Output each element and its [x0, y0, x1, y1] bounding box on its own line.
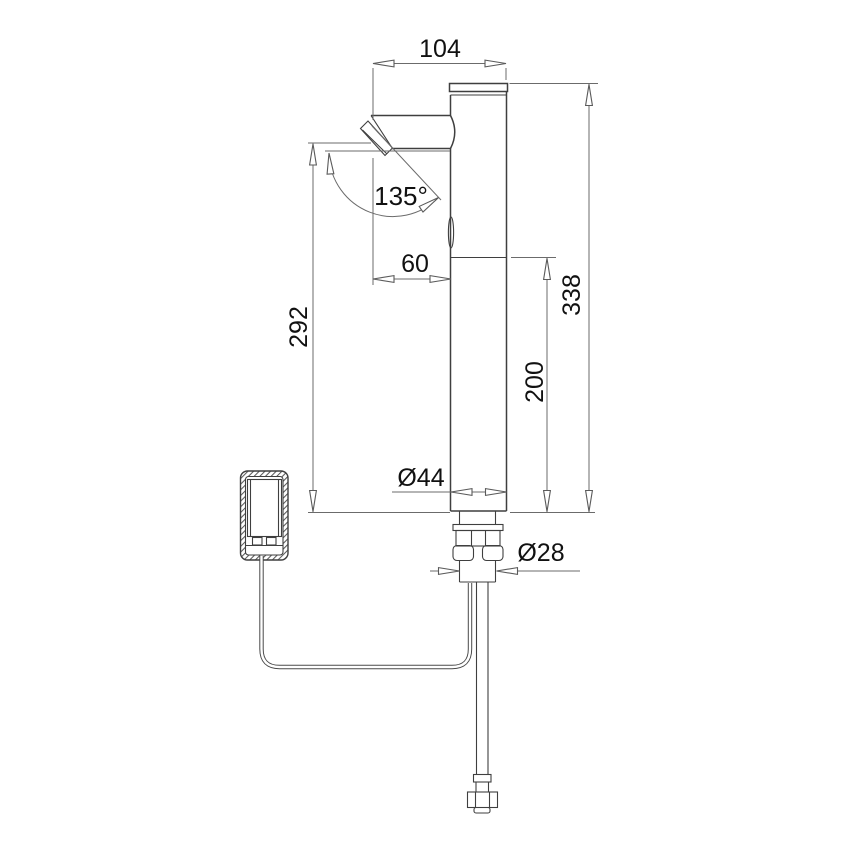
dimension-338: 338 [510, 84, 599, 513]
dim-label-292: 292 [285, 306, 313, 348]
dim-label-200: 200 [521, 361, 549, 403]
wing-nut-right [483, 546, 504, 561]
dim-label-d44: Ø44 [397, 464, 444, 492]
spout-body-transition [451, 116, 455, 149]
faucet-top-cap [450, 84, 508, 92]
technical-drawing-page: 104 135° 60 292 338 [0, 0, 842, 842]
control-box [241, 471, 289, 560]
dim-label-d28: Ø28 [517, 539, 564, 567]
mounting-hardware [453, 511, 503, 813]
dimension-d44: Ø44 [392, 464, 507, 495]
dimension-200: 200 [511, 258, 556, 513]
hose-hex-connector [468, 792, 498, 808]
dimension-104: 104 [373, 35, 506, 285]
faucet-dimension-drawing: 104 135° 60 292 338 [0, 0, 842, 842]
dim-label-104: 104 [419, 35, 461, 63]
lock-nut [456, 531, 500, 547]
dimension-135deg: 135° [325, 126, 450, 217]
faucet-outline [361, 84, 508, 512]
hose-collar [474, 775, 492, 783]
wing-nut-left [453, 546, 474, 561]
hose-tip [474, 808, 490, 814]
dim-label-135deg: 135° [374, 181, 428, 211]
dim-label-338: 338 [558, 274, 586, 316]
dimension-60: 60 [373, 250, 451, 282]
aerator [361, 121, 393, 156]
dim-label-60: 60 [401, 250, 429, 278]
base-washer [453, 525, 503, 531]
